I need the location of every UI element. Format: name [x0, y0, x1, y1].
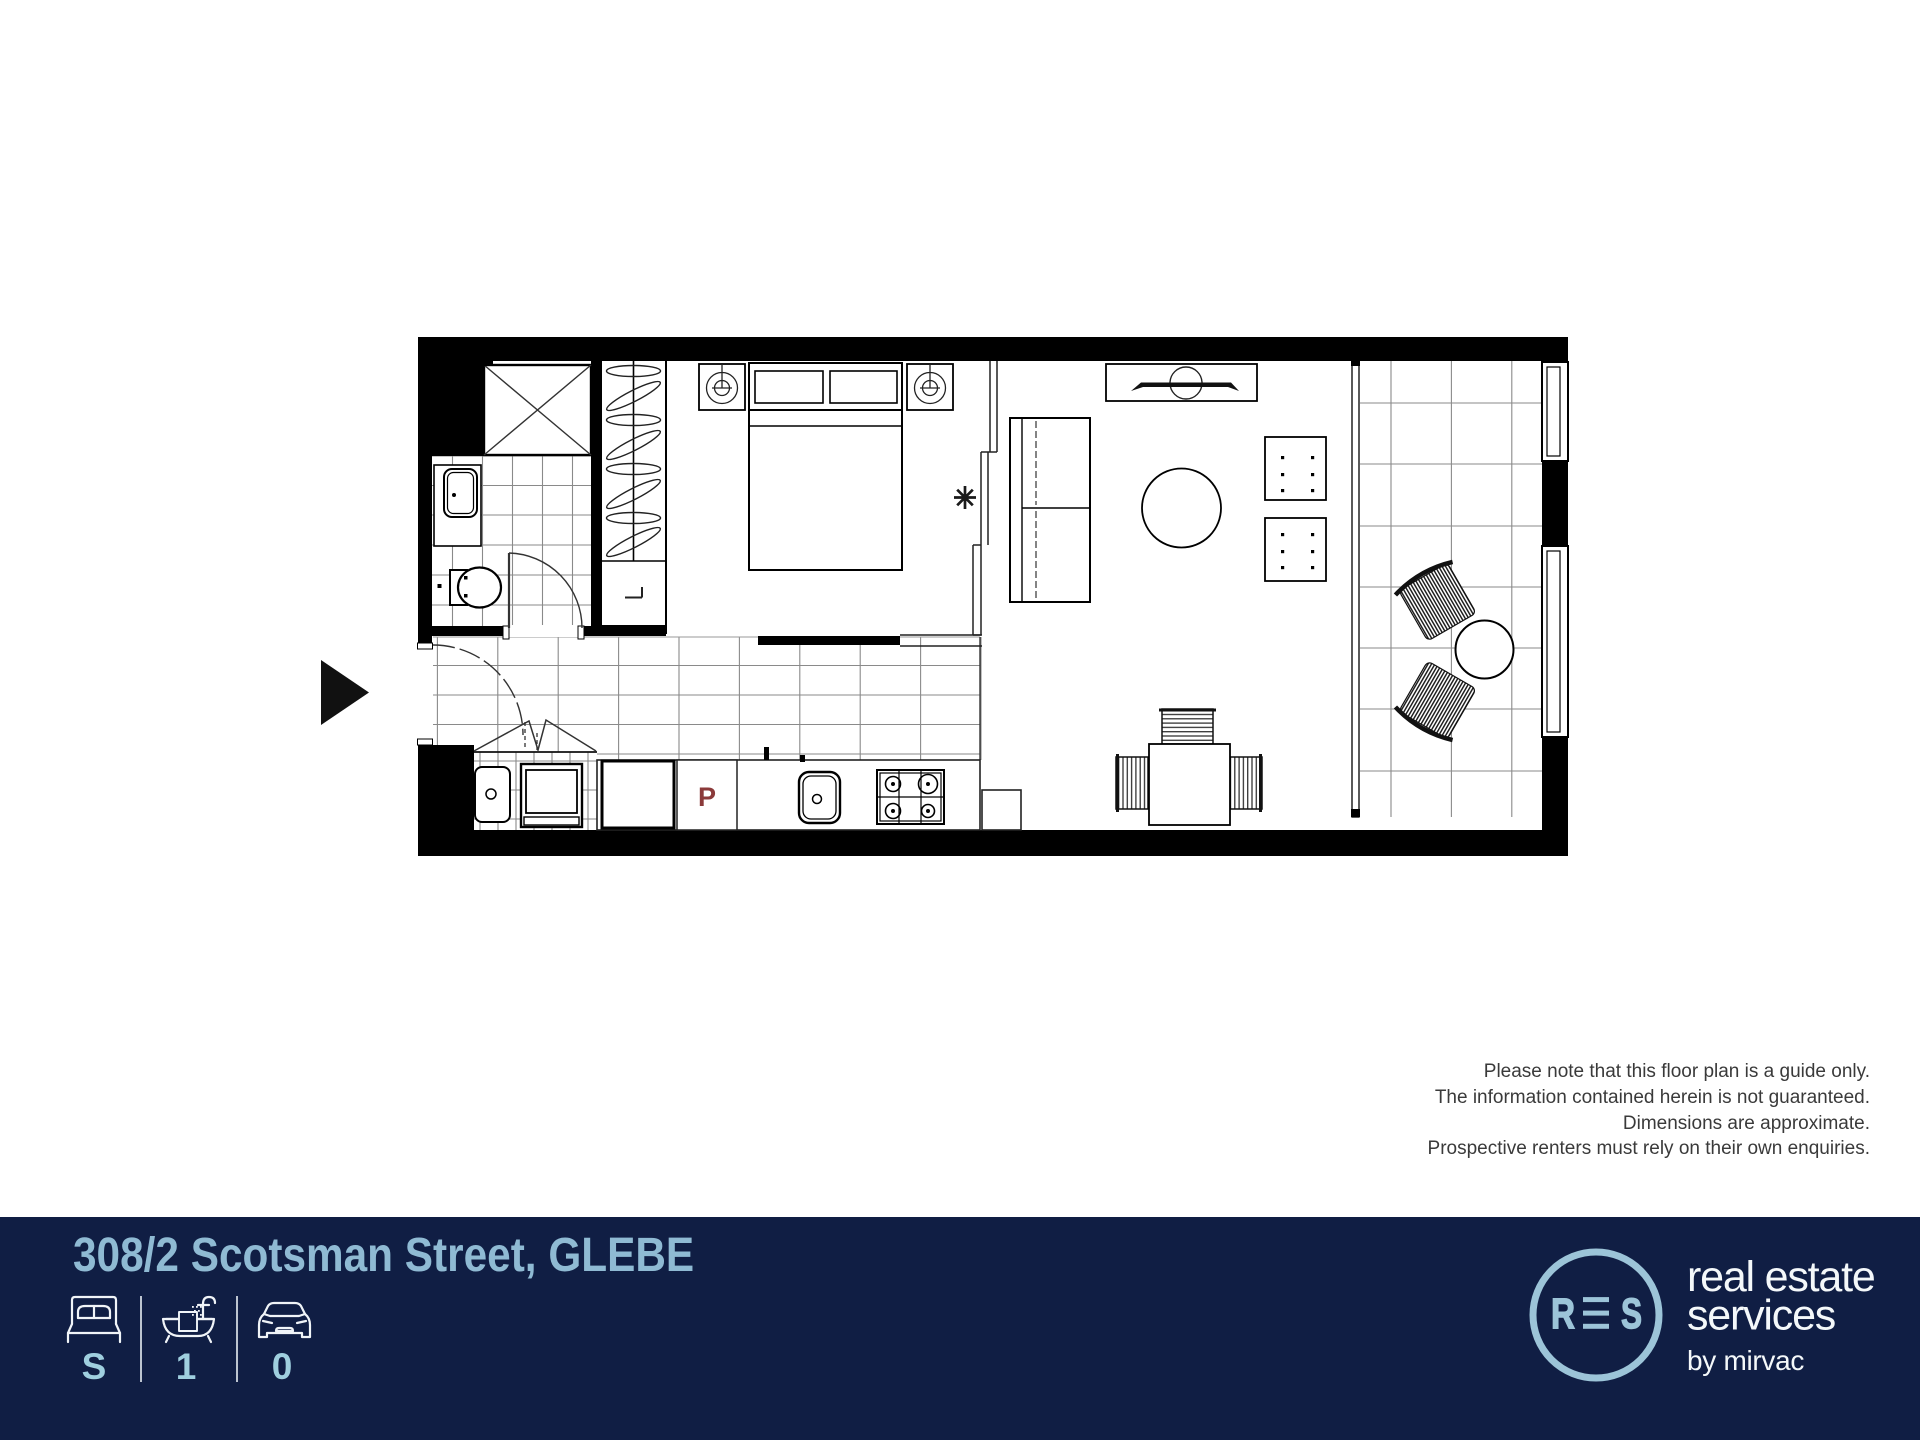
svg-text:R: R: [1551, 1290, 1575, 1338]
svg-text:S: S: [1621, 1290, 1642, 1338]
svg-text:services: services: [1687, 1292, 1835, 1340]
svg-text:by mirvac: by mirvac: [1687, 1345, 1804, 1376]
